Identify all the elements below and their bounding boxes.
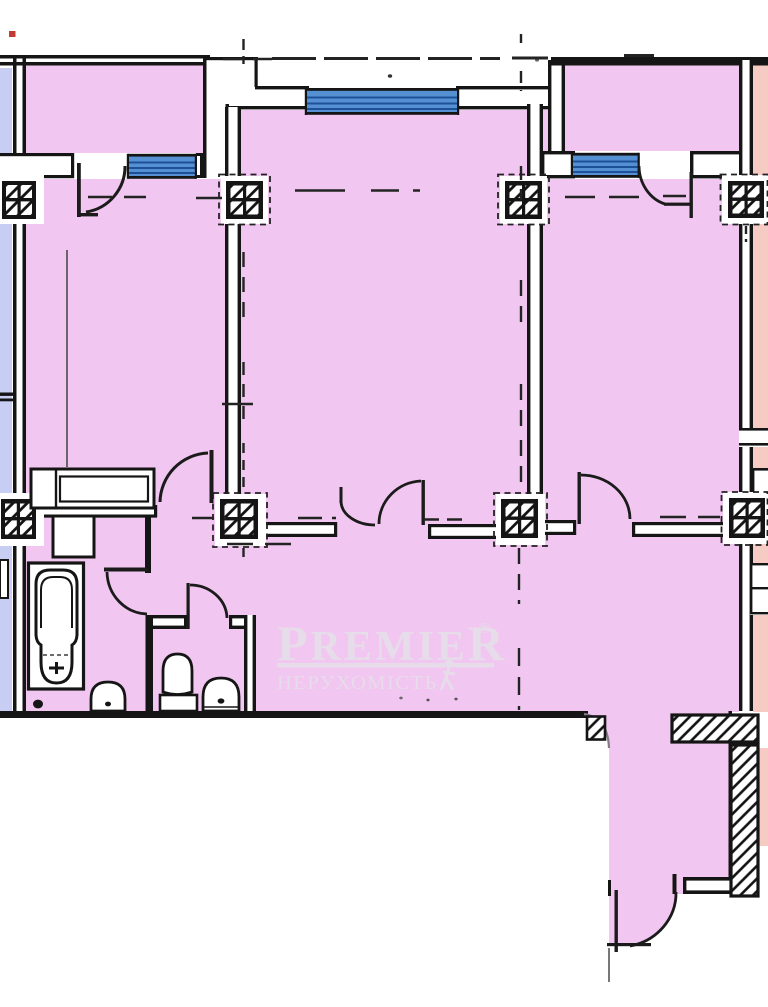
svg-text:НЕРУХОМІСТЬ: НЕРУХОМІСТЬ xyxy=(277,672,438,694)
svg-text:®: ® xyxy=(479,621,490,637)
svg-text:PREMIER: PREMIER xyxy=(277,615,507,671)
